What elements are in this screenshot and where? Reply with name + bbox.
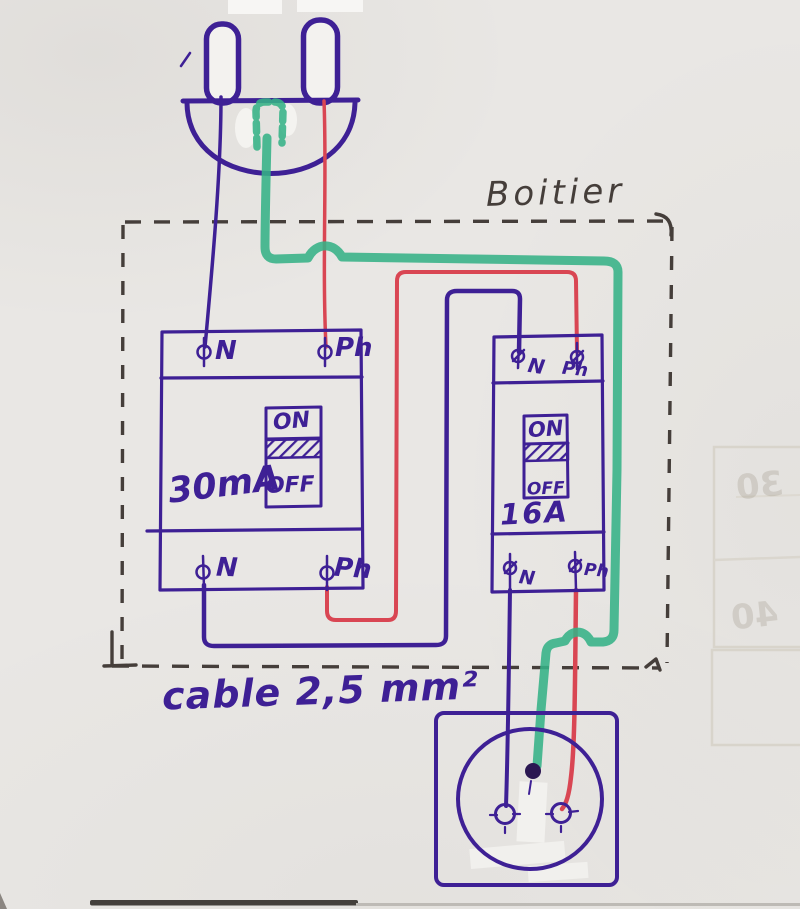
scan-artifacts: [0, 855, 800, 909]
enclosure-label: Boitier: [486, 174, 626, 212]
phase-wire-breaker-to-socket: [562, 590, 576, 809]
breaker-terminal-label-ph-top: Ph: [561, 360, 589, 381]
breaker-terminal-label-n-bottom: N: [518, 568, 536, 589]
breaker-switch-lever: [524, 443, 568, 461]
rcd-bottom-divider: [147, 529, 362, 531]
neutral-wire-breaker-to-socket: [506, 590, 510, 806]
enclosure-dashed-border: [104, 214, 672, 670]
rcd-switch-lever: [266, 439, 321, 458]
bleedthrough-text-top: 30: [734, 464, 785, 509]
breaker-on-label: ON: [527, 418, 564, 441]
rcd-off-label: OFF: [266, 474, 316, 498]
socket-hole-left: [490, 805, 520, 834]
bleedthrough-text-bottom: 40: [729, 594, 780, 639]
breaker-bottom-divider: [492, 532, 604, 534]
breaker-terminal-label-n-top: N: [527, 355, 547, 377]
breaker-rating-label: 16A: [499, 497, 569, 530]
rcd-terminal-label-ph-bottom: Ph: [333, 555, 372, 584]
rcd-terminal-label-n-bottom: N: [216, 555, 239, 582]
rcd-top-divider: [161, 377, 362, 378]
rcd-terminal-label-ph-top: Ph: [335, 335, 373, 361]
scanned-wiring-diagram: Boitier cable 2,5 mm² 30mA ON OFF N Ph N…: [0, 0, 800, 909]
rcd-terminal-label-n-top: N: [215, 338, 237, 364]
plug-prong-right: [304, 20, 338, 103]
breaker-off-label: OFF: [527, 480, 565, 498]
earth-pin: [525, 763, 541, 779]
breaker-terminal-label-ph-bottom: Ph: [583, 562, 609, 581]
plug-prong-left: [207, 24, 239, 103]
enclosure-corner-hook: [656, 214, 671, 235]
stray-pen-mark: [181, 53, 190, 66]
diagram-drawing: [0, 0, 800, 909]
phase-wire-plug-to-rcd: [324, 101, 326, 347]
cable-size-note: cable 2,5 mm²: [161, 666, 479, 715]
rcd-on-label: ON: [272, 409, 311, 434]
